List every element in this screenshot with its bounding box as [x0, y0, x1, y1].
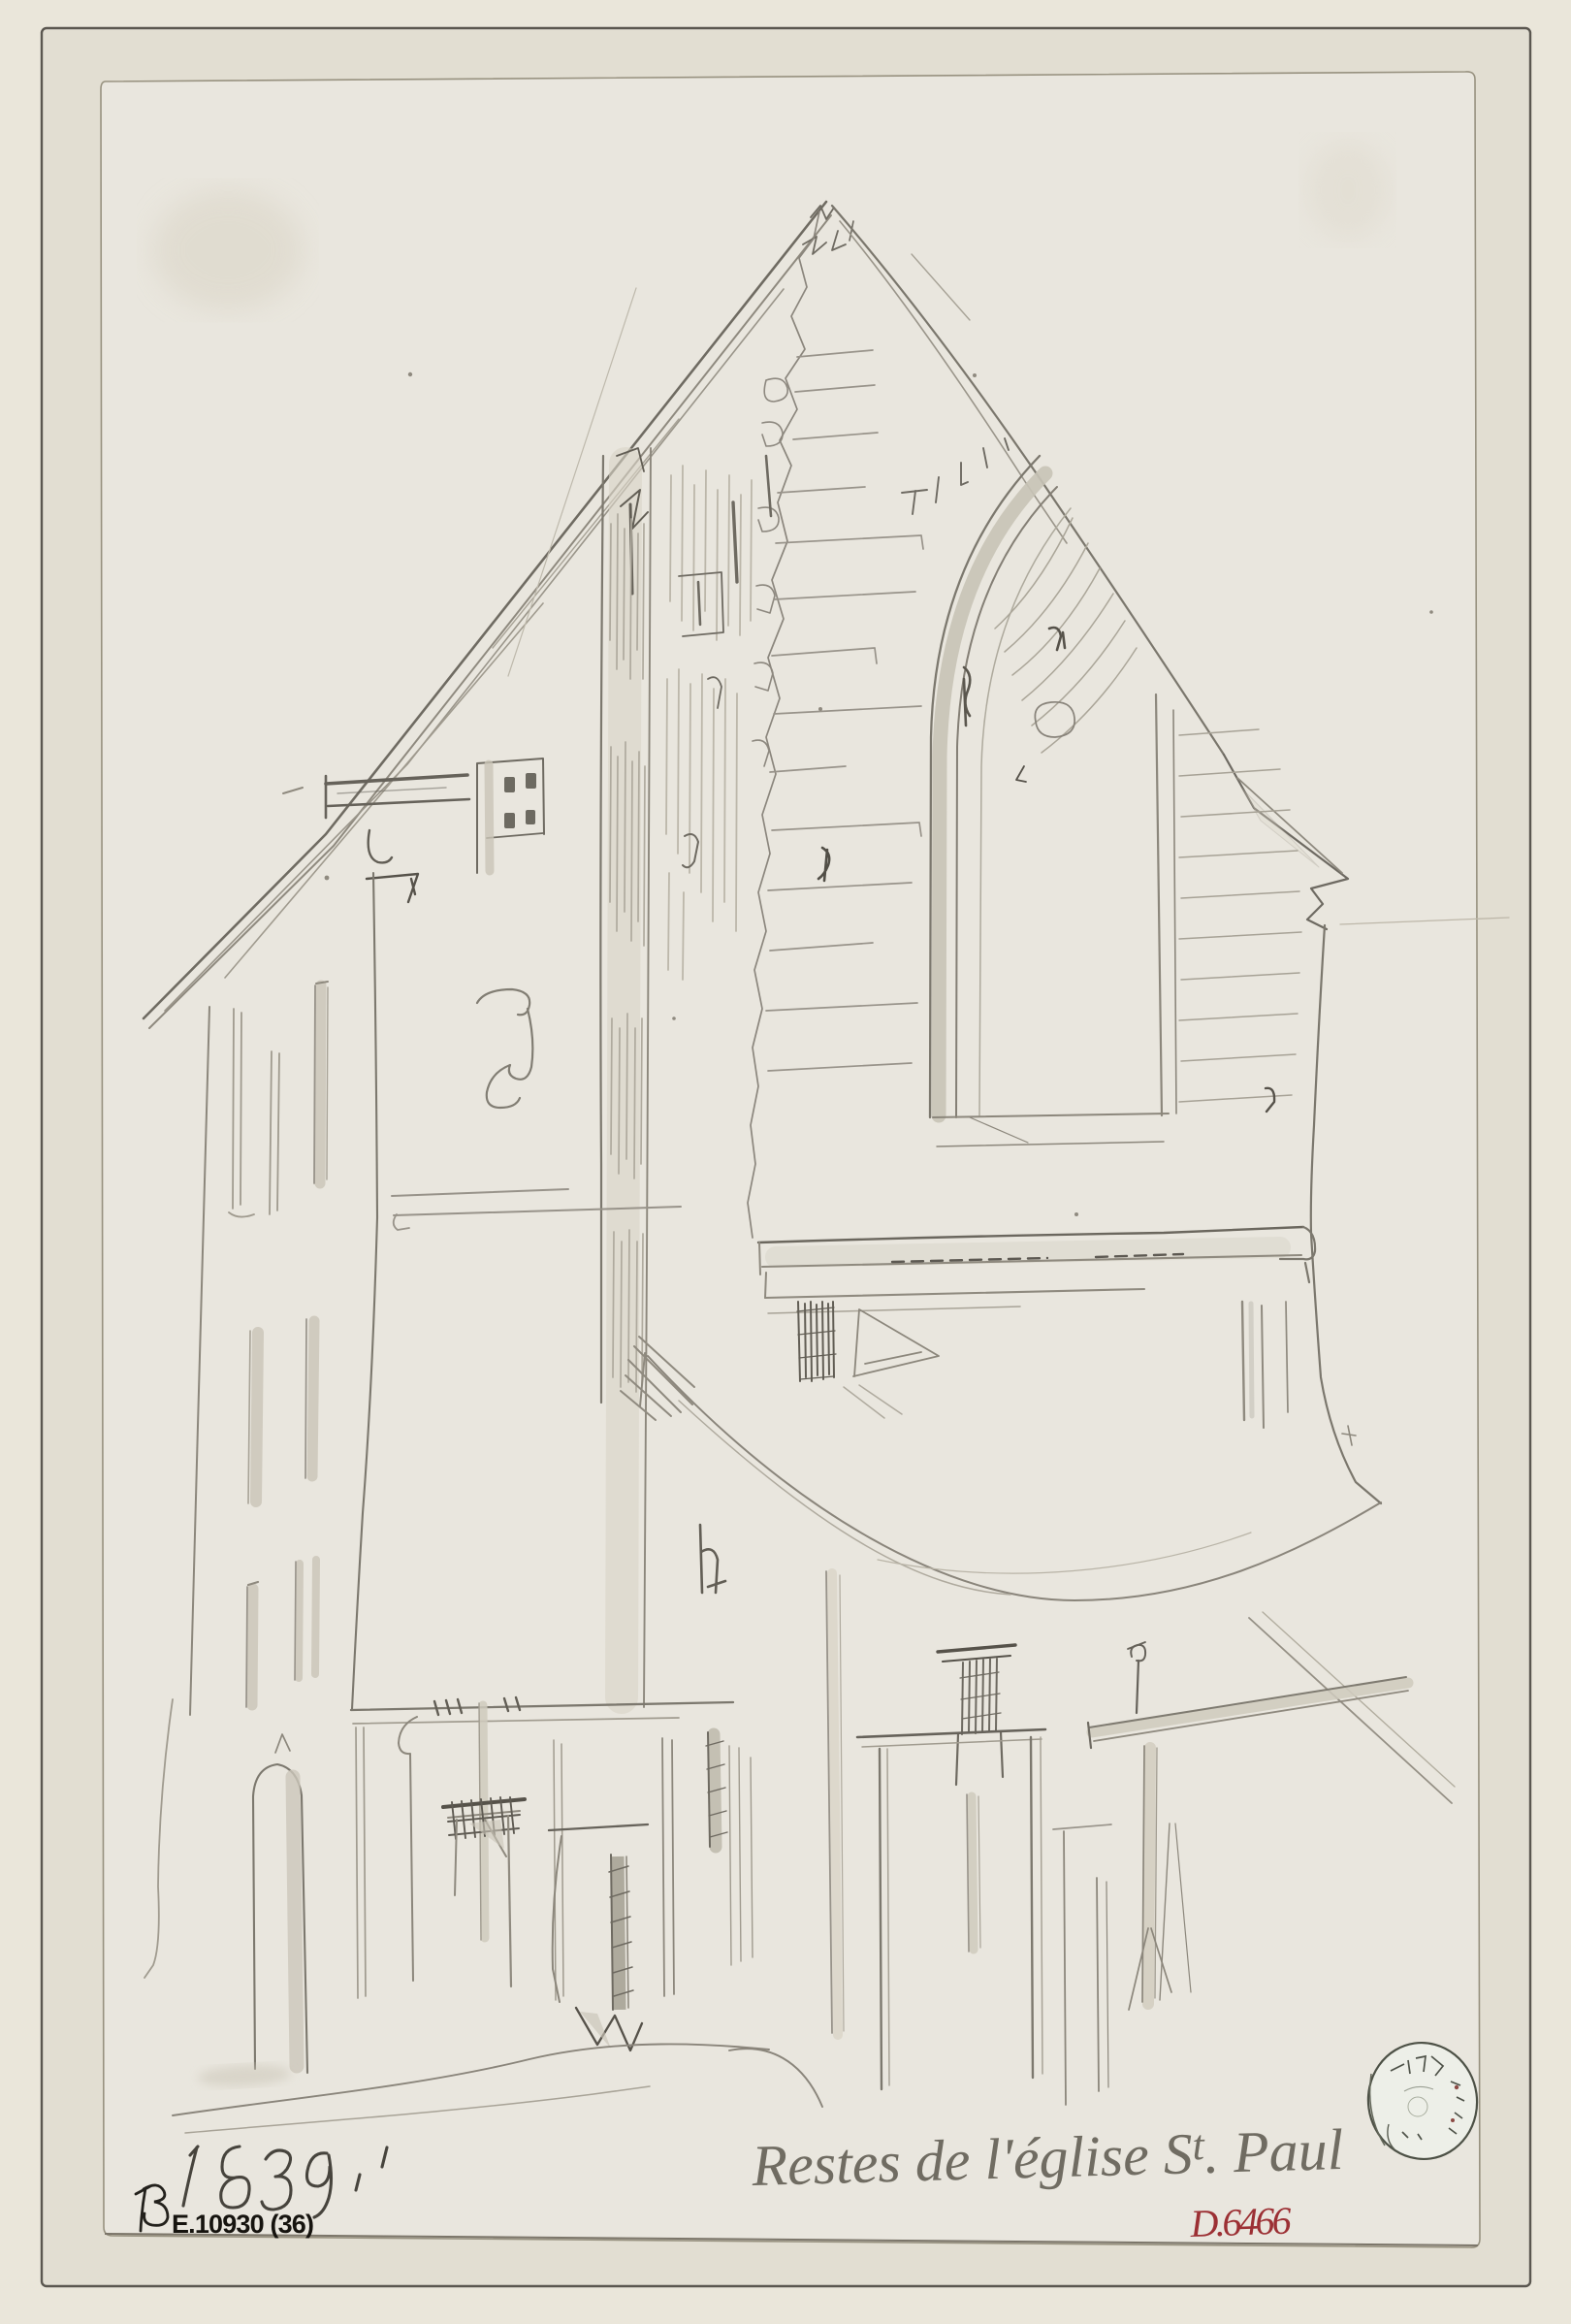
svg-text:D.6466: D.6466: [1189, 2198, 1295, 2245]
svg-text:E.10930 (36): E.10930 (36): [172, 2210, 315, 2239]
